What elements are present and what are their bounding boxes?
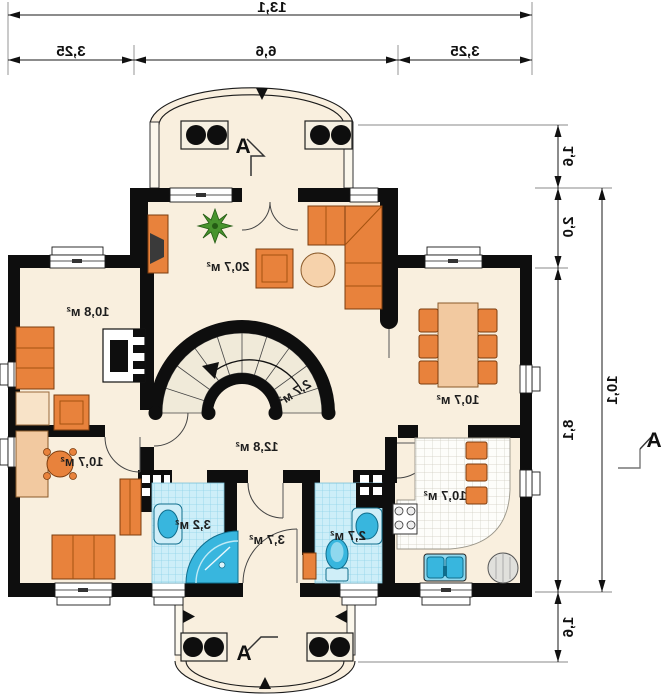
furniture-dining	[419, 303, 497, 387]
room-label-vestibule: 3,7 м²	[249, 532, 285, 547]
chair	[478, 335, 497, 358]
section-letter: A	[646, 429, 661, 452]
window	[340, 583, 378, 605]
chair	[54, 395, 89, 430]
dim-total-height: 10,1	[604, 375, 621, 404]
fireplace	[103, 329, 145, 382]
floor-plan-page: 20,7 м² 10,8 м² 10,7 м² 12,8 м² 2,7 м² 1…	[0, 0, 665, 700]
room-label-hall: 12,8 м²	[235, 439, 279, 454]
window	[420, 583, 472, 605]
window	[55, 583, 112, 605]
section-cut-icon	[618, 449, 640, 468]
toilet	[326, 539, 348, 581]
window	[520, 365, 540, 393]
dim-segment: 3,25	[56, 43, 85, 60]
room-label-bathroom: 3,2 м²	[175, 517, 211, 532]
window	[520, 470, 540, 497]
column-icon	[186, 125, 206, 145]
chair	[419, 335, 438, 358]
dim-segment: 6,6	[256, 43, 277, 60]
dim-total-width: 13,1	[257, 0, 286, 16]
column-icon	[310, 125, 330, 145]
desk	[16, 431, 48, 497]
section-marker-right: A	[618, 429, 662, 468]
stove	[393, 504, 417, 534]
chair	[466, 442, 487, 459]
round-table	[301, 253, 335, 287]
column-icon	[330, 637, 350, 657]
dim-segment: 1,6	[560, 146, 577, 167]
dim-segment: 1,6	[560, 617, 577, 638]
column-icon	[331, 125, 351, 145]
section-letter: A	[236, 642, 251, 665]
kitchen-sink	[424, 554, 466, 581]
chair	[478, 361, 497, 384]
chair	[466, 464, 487, 481]
dining-table	[438, 303, 478, 387]
dim-segment: 2,0	[560, 217, 577, 238]
dimension-top: 13,1 3,25 6,6 3,25	[8, 0, 532, 75]
chair	[419, 361, 438, 384]
dim-segment: 3,25	[450, 43, 479, 60]
room-label-kitchen: 10,7 м²	[423, 488, 467, 503]
section-letter: A	[235, 135, 250, 158]
window	[170, 188, 232, 202]
window	[425, 247, 482, 268]
room-label-upper-left: 10,8 м²	[66, 304, 110, 319]
floor-plan: 20,7 м² 10,8 м² 10,7 м² 12,8 м² 2,7 м² 1…	[0, 0, 665, 700]
room-label-wc: 2,7 м²	[330, 528, 366, 543]
dim-segment: 8,1	[560, 420, 577, 441]
sofa	[16, 327, 54, 389]
room-label-office: 10,7 м²	[60, 454, 104, 469]
column-icon	[204, 637, 224, 657]
porch-wall-left	[150, 122, 159, 188]
window	[152, 583, 185, 605]
chair	[466, 487, 487, 504]
side-table	[16, 392, 49, 425]
sofa	[52, 535, 115, 579]
column-icon	[207, 125, 227, 145]
chair	[478, 309, 497, 332]
column-icon	[183, 637, 203, 657]
column-icon	[309, 637, 329, 657]
window	[350, 188, 378, 202]
room-label-dining: 10,7 м²	[436, 392, 480, 407]
cabinet	[303, 553, 316, 579]
plant-icon	[198, 209, 232, 243]
room-label-living: 20,7 м²	[206, 259, 250, 274]
chair	[419, 309, 438, 332]
window	[50, 247, 105, 268]
boiler	[488, 553, 518, 583]
